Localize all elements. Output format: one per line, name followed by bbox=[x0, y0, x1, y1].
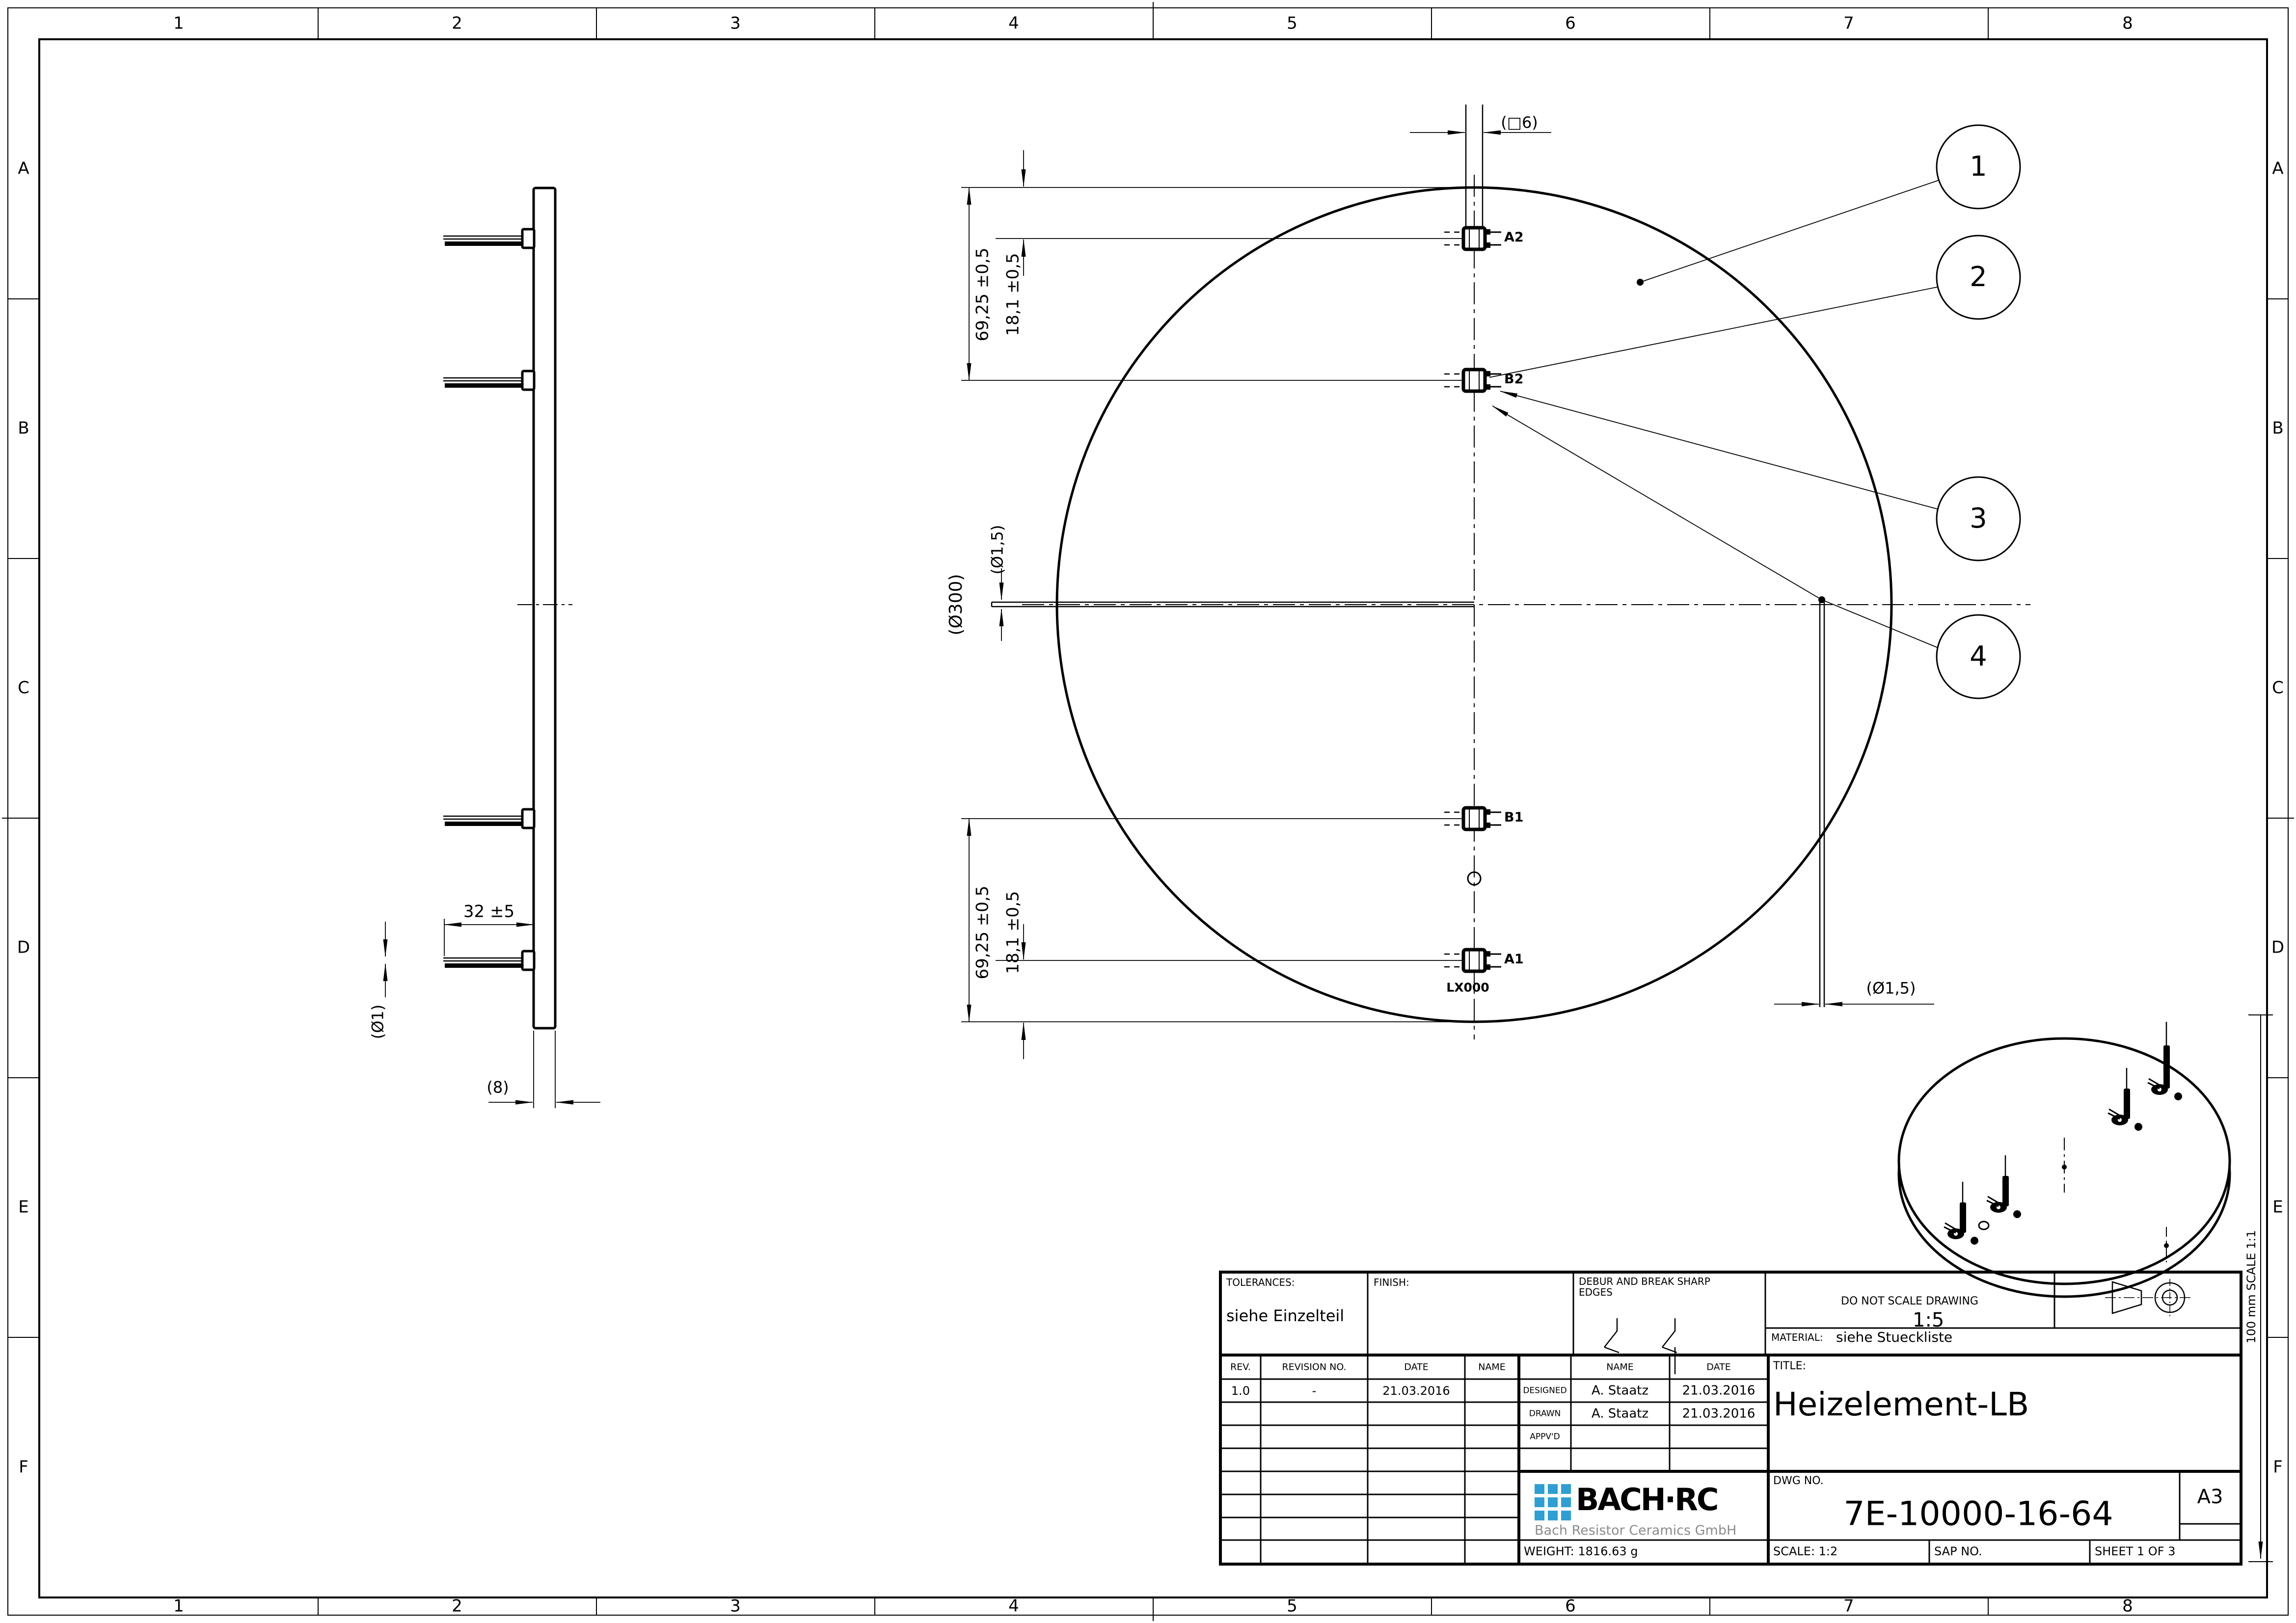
iso-hole bbox=[1979, 1222, 1989, 1229]
zone-top-8: 8 bbox=[2122, 14, 2133, 32]
scale-ruler-label: 100 mm SCALE 1:1 bbox=[2245, 1230, 2258, 1343]
zone-bottom-3: 3 bbox=[730, 1597, 741, 1615]
title-label: TITLE: bbox=[1773, 1360, 1806, 1372]
bottom-dimensions bbox=[961, 819, 1478, 1059]
sign-name-header: NAME bbox=[1606, 1362, 1634, 1373]
zone-top-2: 2 bbox=[452, 14, 462, 32]
revision-no-value: - bbox=[1312, 1384, 1317, 1397]
side-wire-1 bbox=[443, 229, 534, 248]
zone-top-5: 5 bbox=[1287, 14, 1297, 32]
bach-logo-text: BACH·RC bbox=[1576, 1483, 1717, 1517]
terminal-label-B2: B2 bbox=[1504, 372, 1523, 387]
zone-ticks bbox=[2, 2, 2294, 1621]
zone-right-D: D bbox=[2271, 938, 2284, 957]
drawing-title: Heizelement-LB bbox=[1773, 1387, 2029, 1423]
rev-value: 1.0 bbox=[1231, 1384, 1250, 1397]
dwg-no-value: 7E-10000-16-64 bbox=[1843, 1496, 2113, 1533]
side-view bbox=[385, 188, 600, 1108]
drawing-linework bbox=[0, 0, 2296, 1623]
dim-69-bottom-label: 69,25 ±0,5 bbox=[973, 886, 992, 980]
zone-bottom-6: 6 bbox=[1565, 1597, 1576, 1615]
zone-bottom-5: 5 bbox=[1287, 1597, 1297, 1615]
sheet-no-label: SHEET 1 OF 3 bbox=[2095, 1545, 2175, 1558]
designed-label: DESIGNED bbox=[1523, 1386, 1567, 1396]
dim-d15-left-label: (Ø1,5) bbox=[989, 525, 1006, 574]
terminal-label-A1: A1 bbox=[1504, 952, 1524, 967]
tolerances-value: siehe Einzelteil bbox=[1226, 1307, 1344, 1325]
bach-logo-subtitle: Bach Resistor Ceramics GmbH bbox=[1535, 1523, 1736, 1538]
dim-32-label: 32 ±5 bbox=[463, 903, 514, 921]
terminal-label-B1: B1 bbox=[1504, 810, 1523, 825]
dim-18-bottom-label: 18,1 ±0,5 bbox=[1004, 891, 1022, 974]
date-header: DATE bbox=[1404, 1362, 1428, 1373]
terminal-label-A2: A2 bbox=[1504, 230, 1524, 245]
dim-8-label: (8) bbox=[486, 1079, 509, 1096]
weight-value: WEIGHT: 1816.63 g bbox=[1524, 1545, 1638, 1558]
material-value: siehe Stueckliste bbox=[1836, 1330, 1952, 1345]
zone-left-E: E bbox=[18, 1198, 28, 1216]
balloon-leaders bbox=[1489, 180, 1939, 648]
plate-section bbox=[534, 188, 555, 1028]
zone-right-F: F bbox=[2273, 1458, 2283, 1476]
sap-no-label: SAP NO. bbox=[1934, 1545, 1982, 1558]
dim-d15-right-label: (Ø1,5) bbox=[1866, 980, 1916, 997]
outer-border bbox=[8, 8, 2288, 1615]
do-not-scale-label: DO NOT SCALE DRAWING bbox=[1841, 1296, 1978, 1307]
zone-top-6: 6 bbox=[1565, 14, 1576, 32]
zone-bottom-7: 7 bbox=[1843, 1597, 1854, 1615]
side-wire-2 bbox=[443, 371, 534, 390]
laser-marking-label: LX000 bbox=[1446, 981, 1489, 994]
drawn-name: A. Staatz bbox=[1592, 1407, 1648, 1421]
zone-left-D: D bbox=[17, 938, 30, 957]
zone-left-B: B bbox=[18, 419, 29, 437]
zone-bottom-8: 8 bbox=[2122, 1597, 2133, 1615]
finish-label: FINISH: bbox=[1374, 1277, 1409, 1288]
zone-right-B: B bbox=[2272, 419, 2283, 437]
paper-size: A3 bbox=[2197, 1486, 2223, 1508]
zone-right-E: E bbox=[2272, 1198, 2283, 1216]
rev-date-value: 21.03.2016 bbox=[1382, 1384, 1450, 1397]
designed-date: 21.03.2016 bbox=[1682, 1384, 1756, 1398]
balloon-2-number: 2 bbox=[1970, 262, 1987, 293]
zone-bottom-1: 1 bbox=[173, 1597, 184, 1615]
top-dimensions bbox=[961, 150, 1473, 380]
scale-value: SCALE: 1:2 bbox=[1773, 1545, 1837, 1558]
zone-top-1: 1 bbox=[173, 14, 184, 32]
zone-right-C: C bbox=[2272, 679, 2284, 697]
debur-label: DEBUR AND BREAK SHARP EDGES bbox=[1579, 1276, 1741, 1298]
approved-label: APPV'D bbox=[1530, 1433, 1560, 1442]
zone-left-C: C bbox=[18, 679, 29, 697]
balloon-4-number: 4 bbox=[1970, 641, 1987, 672]
dim-square6-label: (□6) bbox=[1501, 114, 1538, 131]
bach-logo-icon bbox=[1535, 1484, 1571, 1520]
revision-no-header: REVISION NO. bbox=[1282, 1362, 1346, 1373]
sign-date-header: DATE bbox=[1706, 1362, 1730, 1373]
dim-d1-label: (Ø1) bbox=[369, 1005, 386, 1039]
zone-bottom-2: 2 bbox=[452, 1597, 462, 1615]
zone-top-7: 7 bbox=[1843, 14, 1854, 32]
drawing-sheet: 1 2 3 4 5 6 7 8 1 2 3 4 5 6 7 8 A B C D … bbox=[0, 0, 2296, 1623]
balloon-3-number: 3 bbox=[1970, 504, 1987, 534]
zone-left-F: F bbox=[19, 1458, 28, 1476]
dim-69-top-label: 69,25 ±0,5 bbox=[973, 248, 992, 342]
material-label: MATERIAL: bbox=[1771, 1332, 1823, 1343]
side-wire-4 bbox=[443, 951, 534, 970]
dwg-no-label: DWG NO. bbox=[1773, 1475, 1824, 1487]
front-view bbox=[961, 105, 2030, 1059]
zone-right-A: A bbox=[2272, 160, 2283, 178]
side-wire-3 bbox=[443, 809, 534, 828]
dim-18-top-label: 18,1 ±0,5 bbox=[1004, 253, 1022, 336]
zone-bottom-4: 4 bbox=[1008, 1597, 1019, 1615]
drawn-label: DRAWN bbox=[1529, 1410, 1561, 1419]
rev-header: REV. bbox=[1230, 1362, 1251, 1373]
tolerances-label: TOLERANCES: bbox=[1226, 1277, 1295, 1288]
name-header: NAME bbox=[1478, 1362, 1506, 1373]
drawn-date: 21.03.2016 bbox=[1682, 1407, 1756, 1421]
right-wire bbox=[1820, 600, 1824, 1007]
designed-name: A. Staatz bbox=[1592, 1384, 1648, 1398]
balloon-1-number: 1 bbox=[1970, 152, 1987, 182]
iso-scale-label: 1:5 bbox=[1913, 1309, 1944, 1331]
zone-top-4: 4 bbox=[1008, 14, 1019, 32]
zone-left-A: A bbox=[18, 160, 29, 178]
zone-top-3: 3 bbox=[730, 14, 741, 32]
dim-d300-label: (Ø300) bbox=[946, 574, 966, 635]
iso-view bbox=[1899, 1022, 2230, 1297]
